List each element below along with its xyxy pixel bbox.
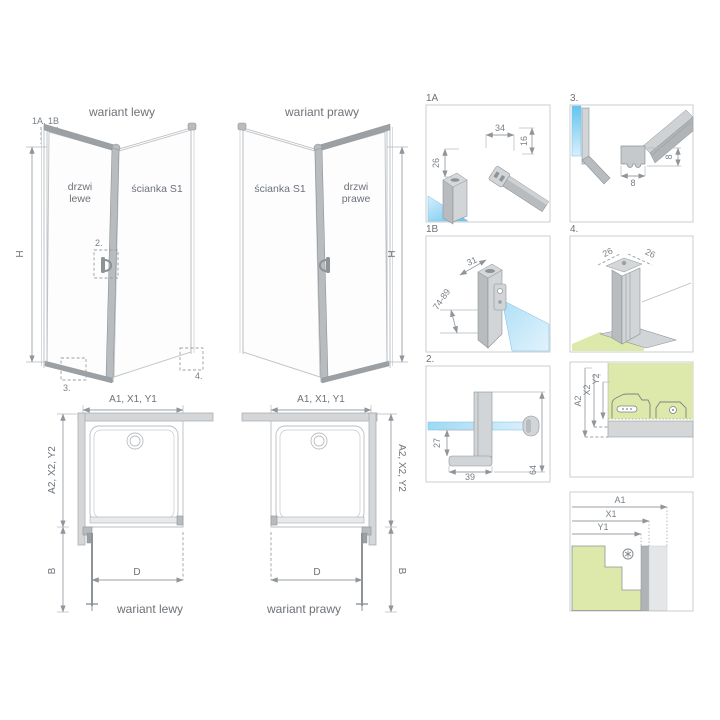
drain-icon — [311, 433, 327, 449]
clamp-screw-icon — [498, 300, 502, 304]
clearance-dim-label: B — [396, 568, 407, 575]
tray-outer — [85, 421, 183, 527]
closed-door-profile — [274, 517, 364, 523]
handle-knob-core — [526, 419, 531, 433]
right-plan-view: A1, X1, Y1 A2, X2, Y2 B D wariant prawy — [242, 394, 407, 616]
y2-dim-label: Y2 — [591, 373, 601, 384]
dim-16-label: 16 — [519, 136, 529, 146]
door-handle-icon — [326, 257, 330, 273]
door-label-line1: drzwi — [68, 181, 93, 193]
detail-3: 3. 8 8 — [570, 93, 693, 222]
wall-bar-right — [369, 413, 376, 545]
dim-8h-label: 8 — [664, 154, 674, 159]
wall-bar-top — [242, 413, 377, 421]
wall-bar-left — [78, 413, 85, 545]
left-3d-view: wariant lewy 1A, 1B drzwi lewe ścianka S… — [15, 105, 203, 393]
tray-inner2 — [280, 430, 360, 518]
wall-panel — [243, 130, 320, 377]
glass-clamp — [494, 284, 506, 310]
width-dim-label: A1, X1, Y1 — [109, 394, 157, 405]
left-plan-view: A1, X1, Y1 A2, X2, Y2 B D wariant lewy — [47, 394, 213, 616]
width-dim-label: A1, X1, Y1 — [297, 394, 345, 405]
handle-foot — [449, 456, 492, 466]
wall-panel — [114, 130, 191, 377]
slot-dot — [622, 408, 624, 410]
dim-39-label: 39 — [465, 472, 475, 482]
door-label-line2: prawe — [342, 193, 371, 205]
handle-marker-label: 2. — [95, 238, 103, 248]
dim-64-label: 64 — [528, 465, 538, 475]
closed-door-profile — [90, 517, 180, 523]
dim-8w-label: 8 — [630, 178, 635, 188]
h-dim-label: H — [387, 250, 398, 257]
detail-1a: 1A 34 16 26 — [426, 93, 550, 224]
detail-1a-label: 1A — [426, 93, 439, 104]
dim-27-label: 27 — [432, 438, 442, 448]
door-panel — [47, 132, 113, 380]
door-label-line1: drzwi — [344, 181, 369, 193]
right-plan-caption: wariant prawy — [266, 602, 341, 616]
post-screw-icon — [622, 261, 626, 265]
drain-icon-inner — [130, 436, 140, 446]
door-label-line2: lewe — [69, 193, 91, 205]
profile-edge-strip — [649, 546, 667, 611]
section-front-box: A1 X1 Y1 — [570, 492, 693, 611]
detail-4: 4. 26 26 — [570, 224, 693, 352]
right-3d-view: wariant prawy ścianka S1 drzwi prawe H — [238, 105, 408, 383]
wall-post-profile — [443, 173, 467, 224]
door-end-bracket — [177, 516, 183, 525]
seal-section-face — [621, 146, 645, 168]
dim-34-label: 34 — [495, 123, 505, 133]
wall-marker-label: 4. — [195, 371, 203, 381]
door-frame-profile — [582, 108, 589, 164]
diagram-canvas: wariant lewy 1A, 1B drzwi lewe ścianka S… — [0, 0, 720, 720]
x2-dim-label: X2 — [582, 384, 592, 395]
tray-inner2 — [94, 430, 174, 518]
depth-dim-label: A2, X2, Y2 — [396, 444, 407, 492]
section-side-box: A2 X2 Y2 — [570, 362, 693, 477]
handle-plate — [474, 392, 492, 458]
glass-edge-strip — [641, 546, 649, 611]
detail-2-label: 2. — [426, 354, 434, 365]
door-handle-icon — [101, 257, 105, 273]
door-dim-label: D — [313, 567, 320, 578]
h-dim-label: H — [15, 250, 26, 257]
wall-top-cap — [188, 123, 196, 130]
clamp-hole-icon — [498, 289, 503, 294]
technical-diagram-page: wariant lewy 1A, 1B drzwi lewe ścianka S… — [0, 0, 720, 720]
dim-26-label: 26 — [431, 158, 441, 168]
depth-dim-label: A2, X2, Y2 — [47, 446, 58, 494]
detail-2: 2. 27 39 64 — [426, 354, 550, 482]
clearance-dim-label: B — [47, 567, 58, 574]
bracket-screw-center — [672, 409, 674, 411]
bottom-marker-label: 3. — [63, 383, 71, 393]
detail-1b: 1B 31 74-89 — [426, 224, 550, 352]
a2-dim-label: A2 — [573, 395, 583, 406]
detail-4-label: 4. — [570, 224, 578, 235]
glass-panel — [572, 106, 581, 156]
left-plan-caption: wariant lewy — [116, 602, 183, 616]
right-view-title: wariant prawy — [284, 105, 359, 119]
door-end-bracket — [271, 516, 277, 525]
x1-dim-label: X1 — [605, 509, 616, 519]
door-dim-label: D — [133, 567, 140, 578]
drain-icon — [127, 433, 143, 449]
wall-top-cap — [238, 123, 246, 130]
wall-bar-top — [78, 413, 213, 421]
a1-dim-label: A1 — [614, 495, 625, 505]
drain-icon-inner — [314, 436, 324, 446]
profile-strip — [608, 421, 693, 437]
y1-dim-label: Y1 — [597, 522, 608, 532]
left-view-title: wariant lewy — [88, 105, 155, 119]
slot-dot — [626, 408, 628, 410]
wall-label: ścianka S1 — [254, 183, 306, 195]
tray-inner — [90, 426, 178, 522]
tray-outer — [271, 421, 369, 527]
door-panel — [321, 132, 387, 380]
tray-inner — [276, 426, 364, 522]
wall-label: ścianka S1 — [131, 183, 183, 195]
detail-3-label: 3. — [570, 93, 578, 104]
detail-1b-label: 1B — [426, 224, 439, 235]
slot-dot — [630, 408, 632, 410]
